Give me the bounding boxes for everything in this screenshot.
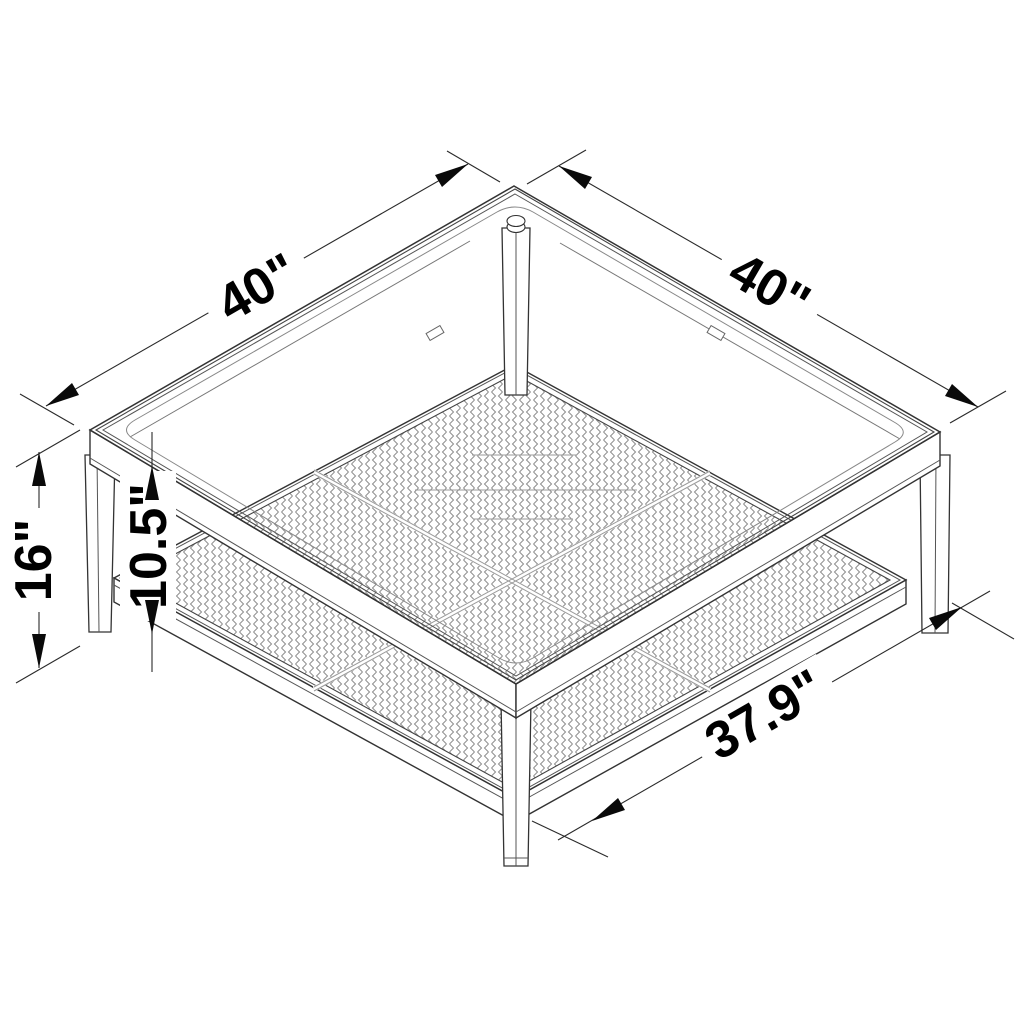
corner-cap	[507, 216, 525, 227]
dim-height-label: 16"	[5, 519, 63, 602]
dim-clearance-label: 10.5"	[120, 483, 178, 609]
dim-top-left-40: 40"	[20, 151, 500, 425]
leg-right	[920, 455, 950, 633]
dim-top-right-40: 40"	[527, 150, 1006, 423]
arrowhead	[32, 634, 46, 668]
leg-back	[502, 216, 530, 396]
glass-clip	[707, 326, 725, 341]
leg-front	[501, 700, 531, 866]
diagram-canvas: 40" 40" 16" 10.5"	[0, 0, 1024, 1024]
arrowhead	[435, 164, 468, 187]
dim-height-16: 16"	[5, 430, 80, 683]
arrowhead	[46, 383, 79, 406]
glass-clip	[426, 326, 444, 341]
leg-left	[85, 455, 115, 632]
arrowhead	[945, 384, 978, 407]
arrowhead	[559, 166, 592, 189]
arrowhead	[592, 798, 625, 821]
table-dimension-diagram: 40" 40" 16" 10.5"	[0, 0, 1024, 1024]
